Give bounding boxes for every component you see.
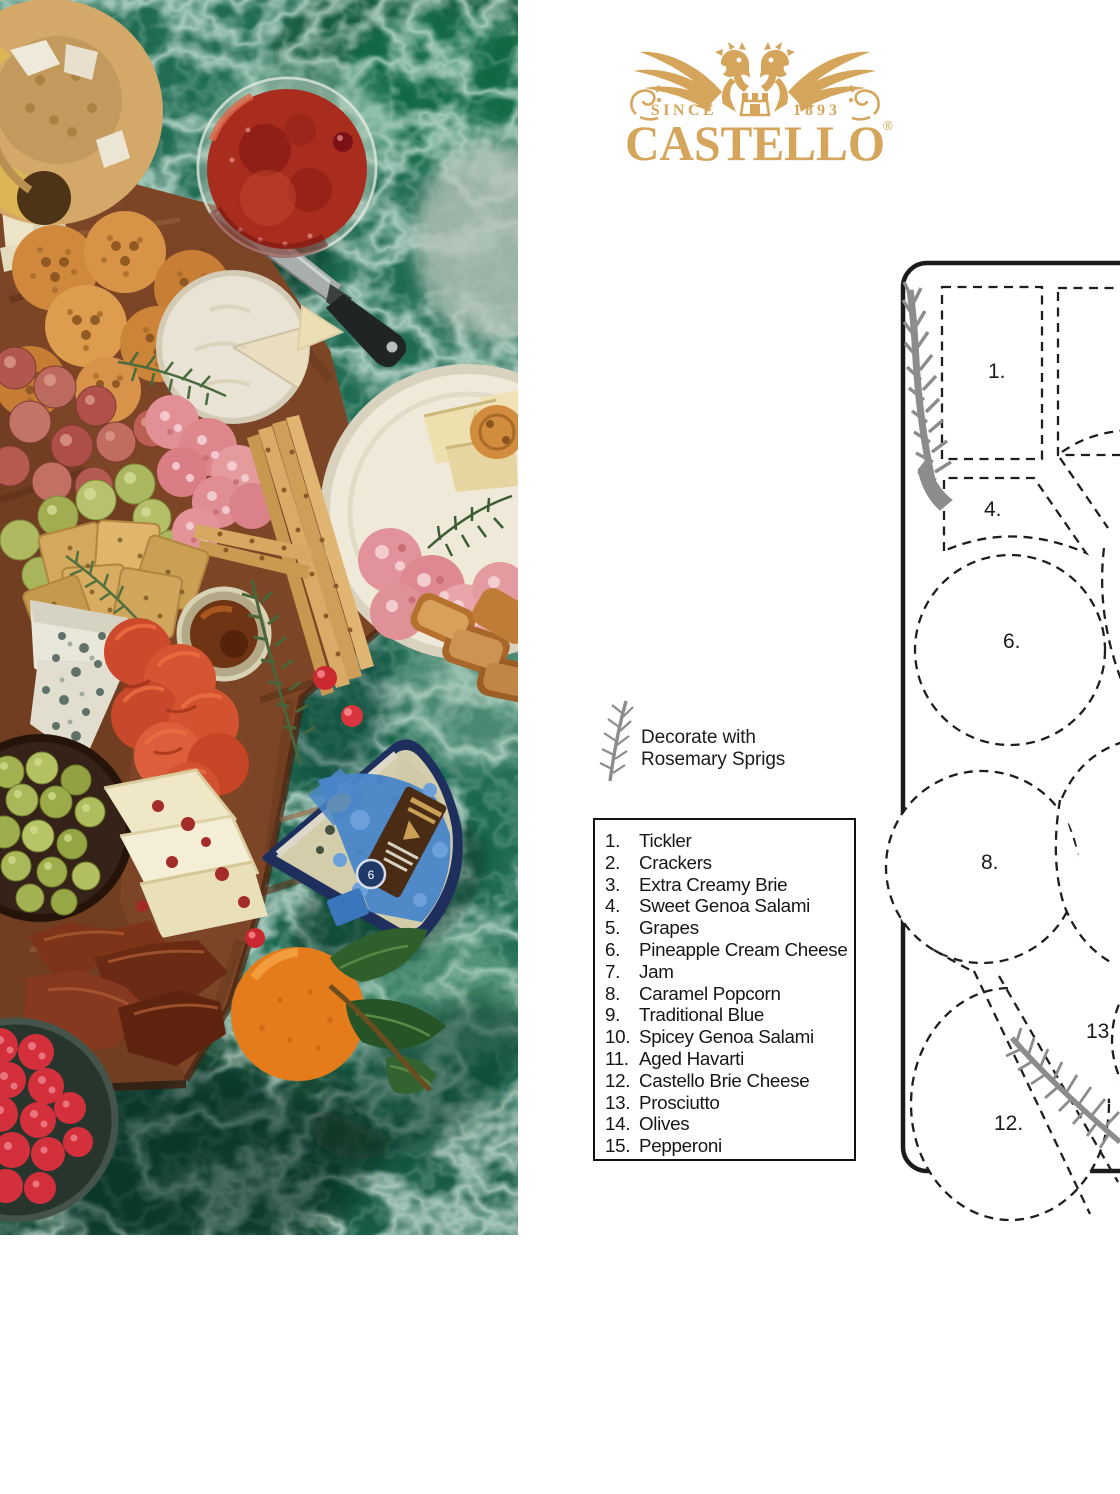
svg-text:4.: 4. — [984, 498, 1002, 521]
svg-text:CASTELLO: CASTELLO — [625, 115, 885, 171]
svg-text:12.: 12. — [994, 1112, 1023, 1135]
svg-text:®: ® — [883, 118, 893, 133]
svg-text:1.: 1. — [988, 360, 1006, 383]
svg-text:13.: 13. — [1086, 1020, 1115, 1043]
svg-text:6: 6 — [368, 868, 375, 882]
svg-text:8.: 8. — [981, 851, 999, 874]
svg-text:6.: 6. — [1003, 630, 1021, 653]
